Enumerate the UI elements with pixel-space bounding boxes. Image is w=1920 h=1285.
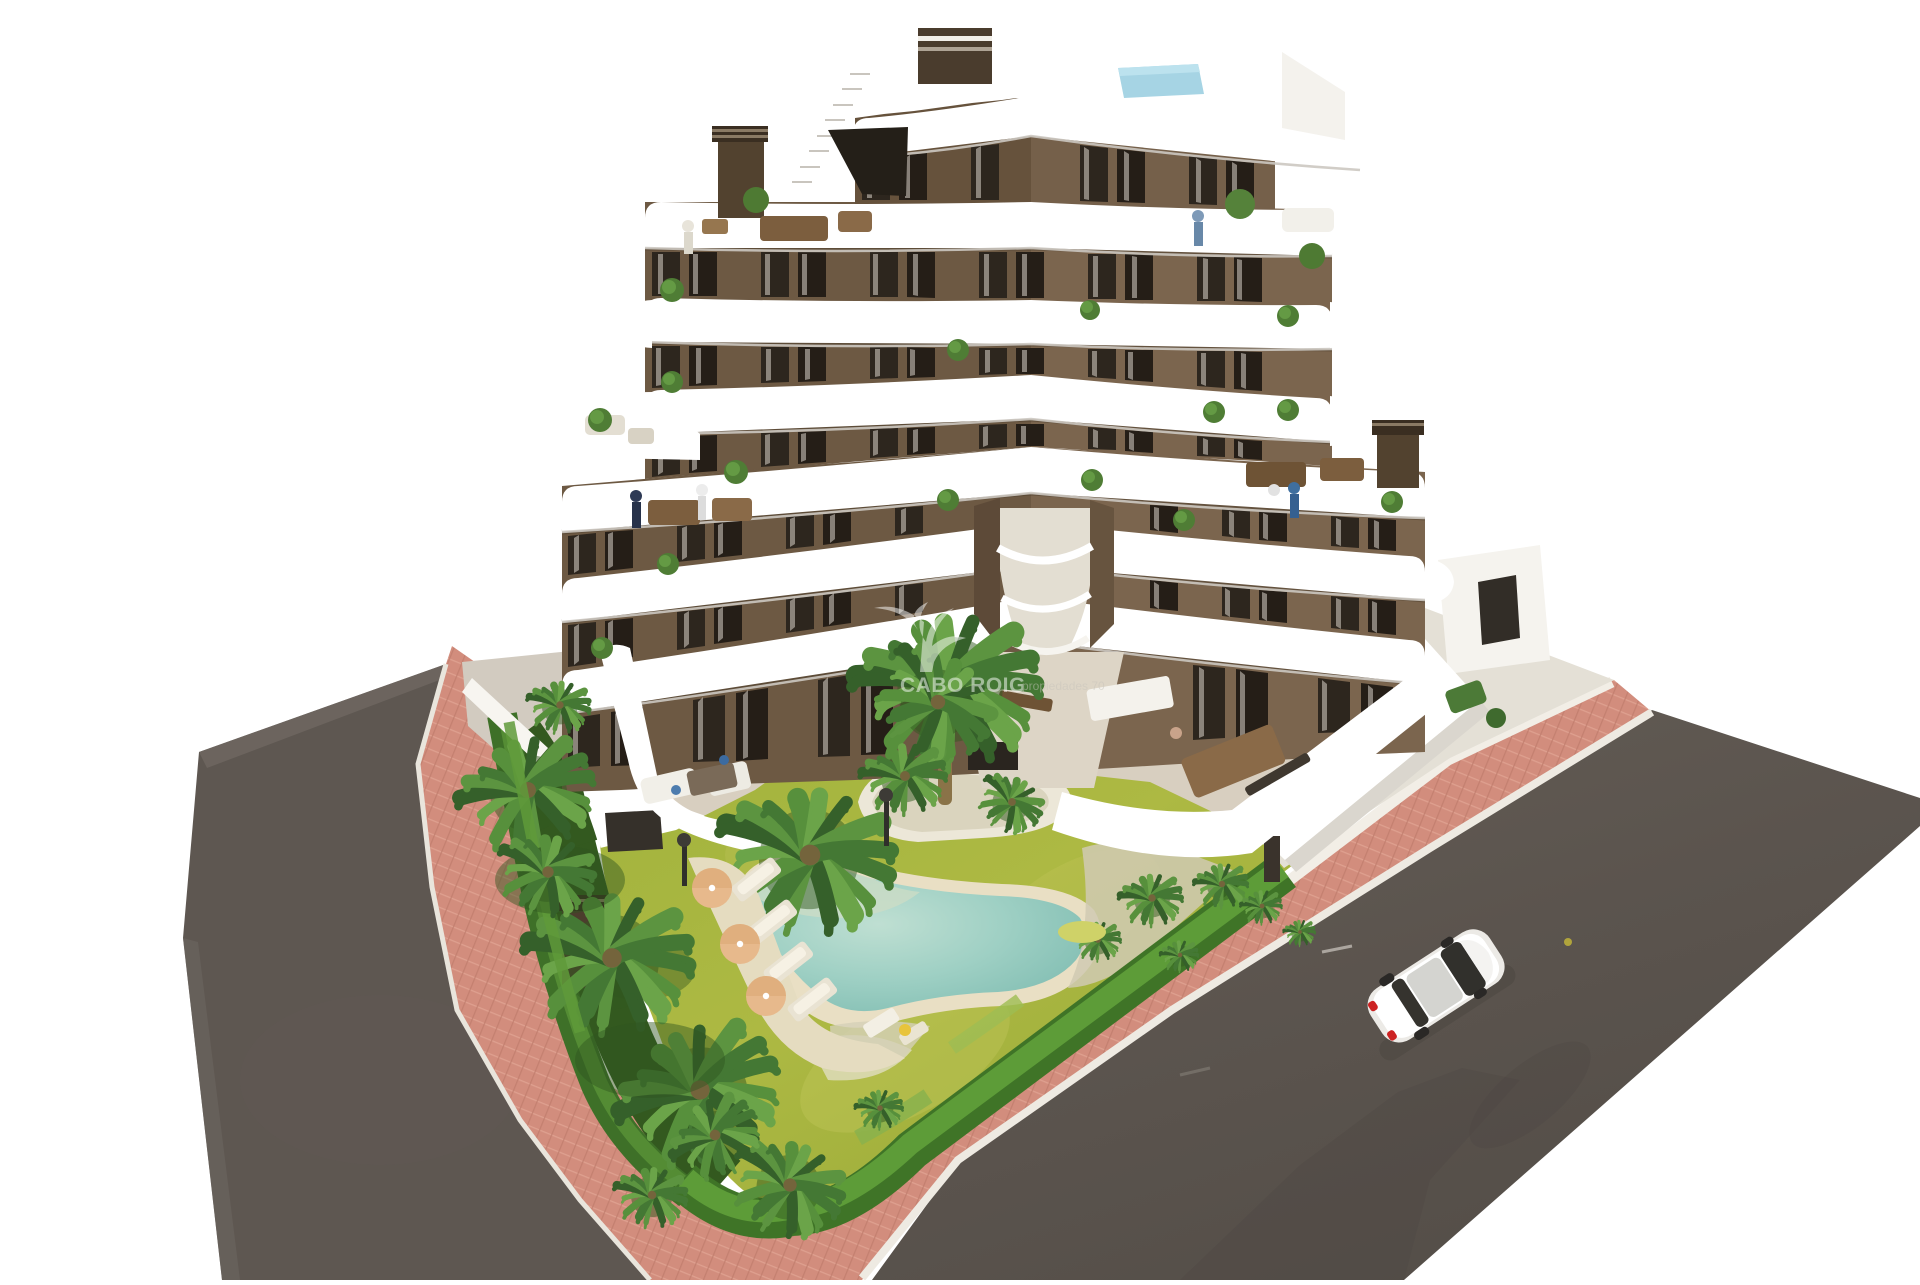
svg-text:propiedades 70: propiedades 70	[1022, 679, 1105, 693]
svg-text:CABO ROIG: CABO ROIG	[900, 674, 1026, 697]
